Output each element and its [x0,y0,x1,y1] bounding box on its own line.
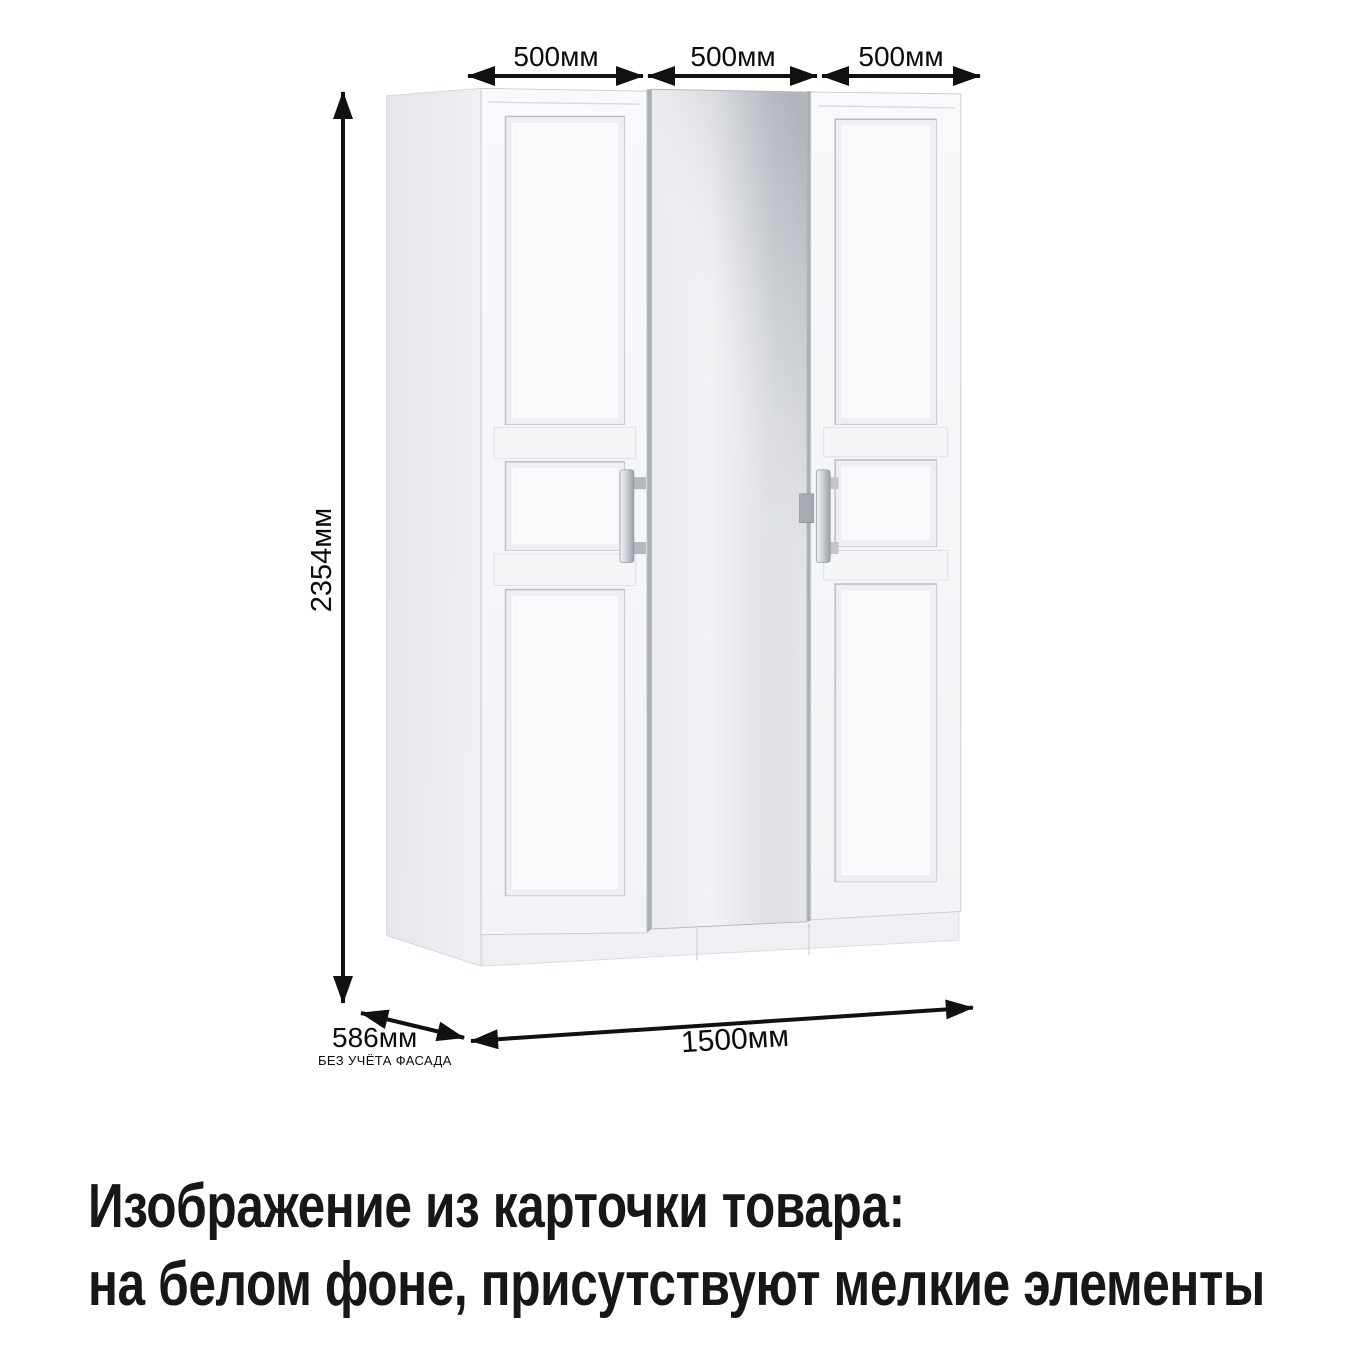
wardrobe-side-panel [387,88,481,966]
right-door-width-arrow [822,74,980,78]
wardrobe-right-door [811,92,961,920]
left-door-width-arrow [468,74,643,78]
wardrobe-mirror-door [651,89,807,929]
height-label: 2354мм [307,485,337,635]
door-width-label-3: 500мм [816,41,986,73]
middle-door-width-arrow [648,74,817,78]
caption-line-2: на белом фоне, присутствуют мелкие элеме… [88,1246,1265,1324]
wardrobe-illustration [330,80,1010,1080]
door-width-label-1: 500мм [471,41,641,73]
depth-note-label: БЕЗ УЧЁТА ФАСАДА [318,1053,452,1068]
caption-line-1: Изображение из карточки товара: [88,1168,905,1246]
depth-label: 586мм [332,1022,417,1054]
caption: Изображение из карточки товара: на белом… [88,1168,1350,1324]
product-image-canvas: 500мм 500мм 500мм 2354мм 586мм БЕЗ УЧЁТА… [0,0,1350,1371]
height-arrow [341,92,345,1003]
door-width-label-2: 500мм [648,41,818,73]
